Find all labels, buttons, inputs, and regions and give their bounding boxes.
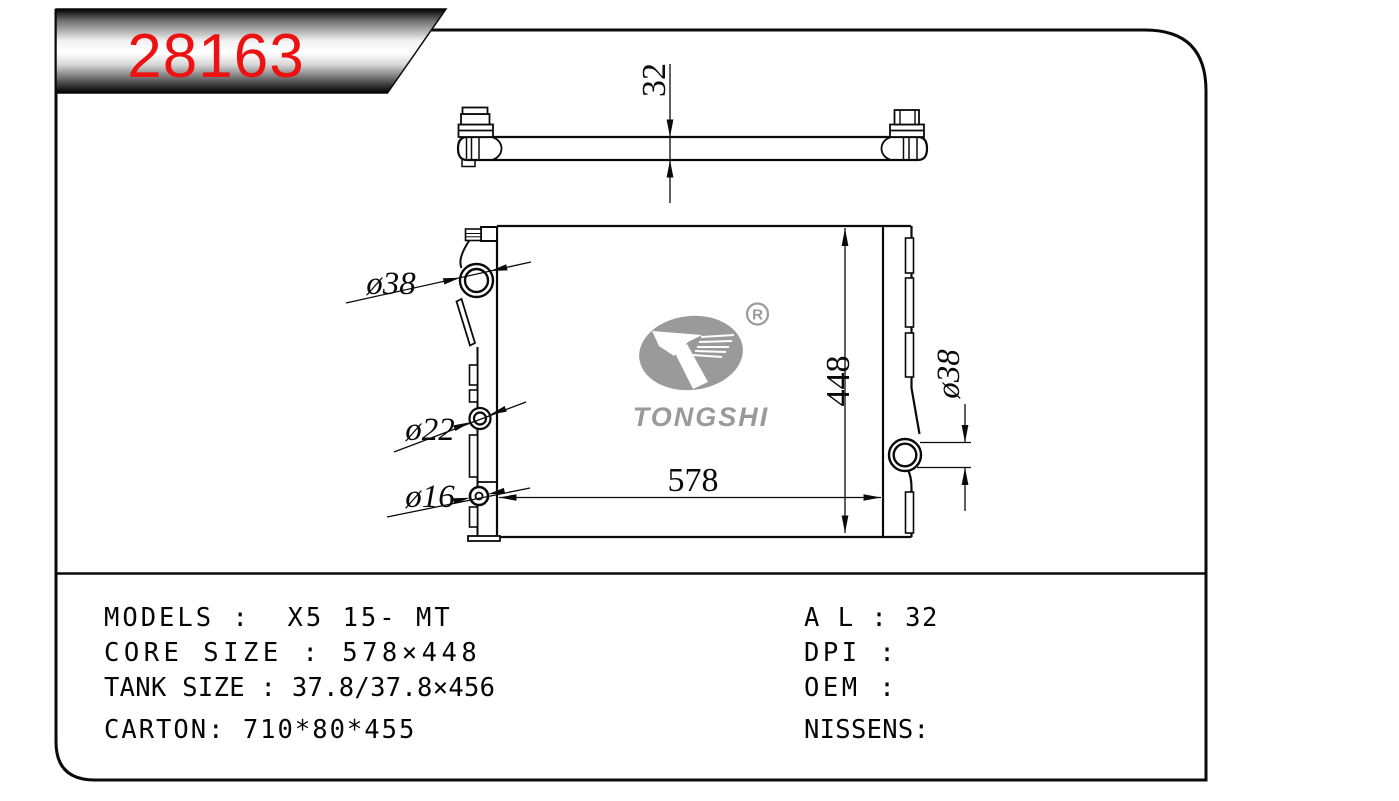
top-bolt xyxy=(466,229,482,241)
spec-row-nissens: NISSENS: xyxy=(804,717,929,743)
bottom-foot xyxy=(468,536,500,541)
slant-bracket xyxy=(457,299,476,346)
spec-row-oem: OEM : xyxy=(804,675,898,701)
dimension-label-width: 578 xyxy=(668,462,719,499)
spec-row-tank-size: TANK SIZE : 37.8/37.8×456 xyxy=(104,675,495,701)
dimension-label-thickness: 32 xyxy=(636,63,673,97)
registered-trademark-letter: R xyxy=(752,307,763,324)
port-right-label: ø38 xyxy=(931,349,967,400)
spec-row-al: A L : 32 xyxy=(804,605,939,631)
side-view-drawing: 32 xyxy=(458,63,927,203)
thickness-dimension: 32 xyxy=(636,63,673,203)
spec-row-models: MODELS : X5 15- MT xyxy=(104,605,453,631)
port-top-left-leader: ø38 xyxy=(346,262,531,303)
right-tank xyxy=(889,226,921,537)
port-bottom-left-outer xyxy=(470,487,488,505)
port-mid-left-leader: ø22 xyxy=(394,402,526,452)
part-number-badge: 28163 xyxy=(56,9,446,93)
side-view-bar xyxy=(458,137,927,160)
logo-brand-text: TONGSHI xyxy=(633,402,770,432)
dimension-label-height: 448 xyxy=(820,356,857,407)
spec-row-dpi: DPI : xyxy=(804,640,898,666)
width-dimension: 578 xyxy=(499,462,881,501)
height-dimension: 448 xyxy=(820,228,857,533)
port-mid-left-outer xyxy=(470,408,491,429)
spec-row-core-size: CORE SIZE : 578×448 xyxy=(104,640,481,666)
top-bracket xyxy=(481,227,497,241)
right-port-dimension: ø38 xyxy=(917,349,971,511)
tongshi-logo: R TONGSHI xyxy=(633,304,770,433)
port-bottom-left-label: ø16 xyxy=(404,479,455,515)
radiator-spec-sheet: 32 xyxy=(0,0,1399,801)
spec-row-carton: CARTON: 710*80*455 xyxy=(104,717,416,743)
port-top-left-label: ø38 xyxy=(365,266,416,302)
port-mid-left-label: ø22 xyxy=(404,412,455,448)
part-number: 28163 xyxy=(127,22,304,91)
